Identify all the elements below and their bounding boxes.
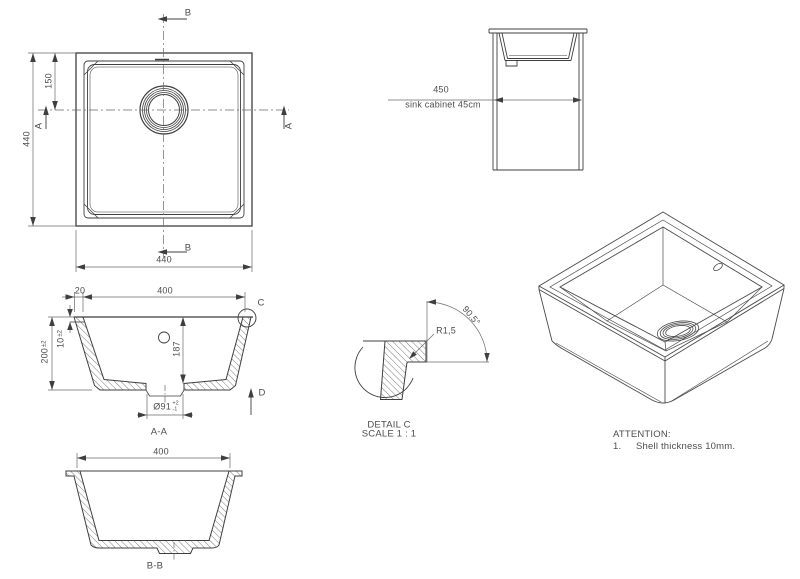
flange-outer xyxy=(539,212,784,357)
dim-10-value: 10 xyxy=(56,338,66,348)
drain-stub xyxy=(506,61,517,67)
dim-drain-tolerance: +2 -1 xyxy=(172,402,178,413)
body-3d xyxy=(539,289,784,404)
note-item-number: 1. xyxy=(613,442,621,452)
dim-drain-diameter: Ø91 +2 -1 xyxy=(153,402,178,413)
detail-marker-c: C xyxy=(257,298,264,308)
isometric-view xyxy=(539,212,784,404)
attention-heading: ATTENTION: xyxy=(613,430,671,440)
section-marker-a-right: A xyxy=(284,123,294,130)
dim-400-bb: 400 xyxy=(153,448,169,457)
dim-200-tol: ±2 xyxy=(41,340,47,347)
bowl-right-corner xyxy=(727,287,762,322)
overflow-hole xyxy=(159,332,170,343)
bowl-opening xyxy=(560,227,762,342)
dim-187-depth: 187 xyxy=(173,341,182,357)
plan-dimensions xyxy=(28,53,252,272)
radius-label: R1,5 xyxy=(436,327,456,336)
drawing-linework xyxy=(0,0,800,579)
left-wall-section xyxy=(74,317,146,390)
dim-400-top: 400 xyxy=(157,287,173,296)
bowl-left-corner xyxy=(560,287,607,321)
dim-200-value: 200 xyxy=(40,348,50,364)
countertop xyxy=(489,29,587,33)
dim-440-left: 440 xyxy=(23,131,32,147)
bb-section-body xyxy=(66,471,242,554)
dim-440-bottom: 440 xyxy=(156,256,172,265)
section-aa-view xyxy=(48,292,256,419)
dim-450-cabinet: 450 xyxy=(433,86,449,95)
flange-underside xyxy=(539,289,784,362)
overflow-3d xyxy=(712,262,723,272)
section-markers xyxy=(43,16,287,255)
dim-10-rim: 10±2 xyxy=(57,330,66,348)
section-marker-b-top: B xyxy=(185,8,192,18)
sink-technical-drawing: B B A A 440 150 440 450 sink cabinet 45c… xyxy=(0,0,800,579)
section-aa-label: A-A xyxy=(151,427,167,437)
dim-drain-value: Ø91 xyxy=(153,403,171,412)
detail-c-scale: SCALE 1 : 1 xyxy=(362,429,416,439)
right-wall-section xyxy=(184,317,251,390)
bowl-opening-edge xyxy=(88,65,241,215)
section-bb-view xyxy=(66,453,242,560)
corner-chamfers xyxy=(84,61,244,218)
dim-150-offset: 150 xyxy=(45,73,54,89)
bowl-profile xyxy=(499,33,577,66)
note-item-text: Shell thickness 10mm. xyxy=(636,442,735,452)
sink-outer-edge xyxy=(76,53,252,226)
section-marker-b-bottom: B xyxy=(185,243,192,253)
direction-marker-d: D xyxy=(258,388,265,398)
dim-200-height: 200±2 xyxy=(41,340,50,363)
section-bb-label: B-B xyxy=(147,561,163,571)
dim-10-tol: ±2 xyxy=(57,330,63,337)
section-aa-dimensions xyxy=(48,292,245,419)
detail-section xyxy=(381,341,427,400)
cabinet-caption: sink cabinet 45cm xyxy=(405,101,480,110)
section-marker-a-left: A xyxy=(34,123,44,130)
dim-20-wall: 20 xyxy=(75,287,85,296)
direction-d-arrow xyxy=(248,388,254,415)
plan-view xyxy=(28,14,289,272)
dim-drain-tol-minus: -1 xyxy=(172,407,178,413)
sink-rim-inner-edge xyxy=(84,61,244,218)
